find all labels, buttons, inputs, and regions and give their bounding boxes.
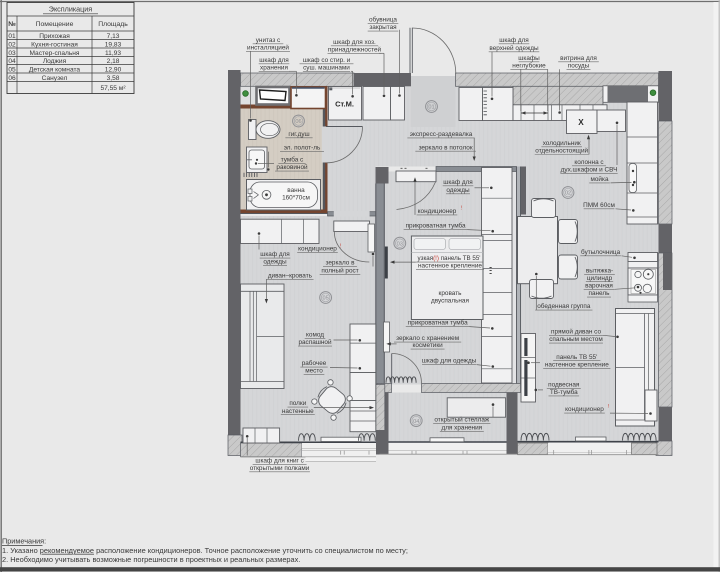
svg-text:зеркало в: зеркало в — [326, 260, 356, 267]
svg-text:Детская комната: Детская комната — [29, 66, 81, 73]
svg-text:для хранения: для хранения — [441, 425, 482, 432]
svg-text:унитаз с: унитаз с — [256, 37, 281, 44]
svg-text:!: ! — [461, 206, 462, 212]
svg-text:04: 04 — [413, 419, 419, 425]
svg-text:57,55 м²: 57,55 м² — [100, 85, 126, 92]
svg-text:косметики: косметики — [412, 342, 443, 349]
svg-text:Мастер-спальня: Мастер-спальня — [29, 50, 79, 57]
svg-text:11,93: 11,93 — [105, 50, 121, 57]
svg-text:06: 06 — [295, 119, 301, 125]
svg-text:панель ТВ 55': панель ТВ 55' — [556, 354, 597, 361]
svg-text:вытяжка-: вытяжка- — [586, 267, 613, 274]
svg-text:шкаф для: шкаф для — [260, 251, 290, 258]
svg-text:06: 06 — [8, 75, 16, 82]
svg-text:1. Указано рекомендуемое распо: 1. Указано рекомендуемое расположение ко… — [2, 546, 408, 555]
svg-text:тумба с: тумба с — [281, 156, 304, 164]
svg-text:настенные: настенные — [282, 408, 314, 415]
svg-text:колонна с: колонна с — [574, 159, 604, 166]
svg-text:2. Необходимо учитывать возмож: 2. Необходимо учитывать возможные погреш… — [2, 555, 300, 564]
svg-text:!: ! — [340, 243, 341, 249]
svg-text:одежды: одежды — [446, 187, 470, 194]
svg-text:ванна: ванна — [287, 187, 305, 194]
svg-text:открытый стеллаж: открытый стеллаж — [434, 416, 490, 424]
svg-text:закрытая: закрытая — [369, 24, 397, 31]
svg-text:№: № — [8, 21, 16, 28]
svg-text:экспресс-раздевалка: экспресс-раздевалка — [410, 131, 473, 138]
svg-text:3,58: 3,58 — [107, 75, 120, 82]
svg-text:шкафы: шкафы — [518, 55, 540, 62]
svg-text:прикроватная тумба: прикроватная тумба — [406, 222, 466, 230]
svg-text:неглубокие: неглубокие — [512, 61, 546, 69]
svg-text:02: 02 — [8, 41, 16, 48]
svg-text:12,90: 12,90 — [105, 66, 122, 73]
svg-text:Помещение: Помещение — [36, 21, 74, 28]
svg-text:полный рост: полный рост — [321, 266, 358, 274]
svg-text:05: 05 — [322, 296, 328, 302]
svg-text:X: X — [578, 118, 584, 127]
svg-text:кондиционер: кондиционер — [298, 246, 337, 253]
svg-text:инсталляцией: инсталляцией — [247, 43, 289, 51]
svg-text:узкая(!) панель ТВ 55': узкая(!) панель ТВ 55' — [418, 255, 481, 262]
svg-text:2,18: 2,18 — [107, 58, 120, 65]
svg-text:двуспальная: двуспальная — [431, 297, 469, 304]
svg-text:бутылочница: бутылочница — [581, 248, 621, 256]
svg-text:Кухня-гостиная: Кухня-гостиная — [31, 41, 78, 48]
svg-text:шкаф для одежды: шкаф для одежды — [422, 358, 477, 365]
svg-text:шкаф для хоз.: шкаф для хоз. — [333, 39, 376, 46]
svg-text:Лоджия: Лоджия — [43, 58, 67, 65]
svg-text:шкаф для: шкаф для — [443, 179, 473, 186]
svg-text:дух.шкафом и СВЧ: дух.шкафом и СВЧ — [561, 166, 618, 173]
svg-text:шкаф для: шкаф для — [259, 57, 289, 64]
svg-text:04: 04 — [8, 58, 16, 65]
svg-text:ТВ-тумба: ТВ-тумба — [550, 388, 578, 396]
svg-text:витрина для: витрина для — [560, 55, 597, 62]
svg-text:настенное крепление: настенное крепление — [545, 361, 609, 368]
svg-text:Примечания:: Примечания: — [2, 537, 46, 546]
svg-text:05: 05 — [8, 66, 16, 73]
svg-text:7,13: 7,13 — [107, 33, 120, 40]
svg-text:Прихожая: Прихожая — [39, 33, 70, 40]
svg-text:место: место — [305, 368, 323, 375]
svg-text:мойка: мойка — [590, 175, 608, 183]
svg-text:панель: панель — [589, 290, 611, 297]
svg-text:верхней одежды: верхней одежды — [489, 44, 539, 52]
svg-text:открытыми полками: открытыми полками — [250, 465, 310, 472]
svg-text:обувница: обувница — [369, 15, 397, 23]
svg-text:кондиционер: кондиционер — [565, 406, 604, 413]
svg-text:настенное крепление: настенное крепление — [418, 263, 482, 270]
svg-text:подвесная: подвесная — [548, 382, 580, 389]
svg-text:комод: комод — [306, 332, 324, 339]
svg-text:посуды: посуды — [568, 62, 590, 69]
svg-text:шкаф для книг с: шкаф для книг с — [255, 457, 304, 464]
svg-text:кровать: кровать — [439, 290, 463, 297]
svg-text:гиг.душ: гиг.душ — [288, 131, 309, 138]
svg-text:160*70см: 160*70см — [282, 194, 310, 201]
svg-text:02: 02 — [565, 191, 571, 197]
svg-text:шкаф со стир. и: шкаф со стир. и — [303, 57, 351, 64]
svg-text:полки: полки — [289, 400, 306, 407]
svg-text:Ст.М.: Ст.М. — [335, 100, 354, 109]
svg-text:Санузел: Санузел — [42, 75, 68, 82]
svg-text:01: 01 — [8, 33, 16, 40]
svg-text:прикроватная тумба: прикроватная тумба — [408, 319, 468, 327]
svg-text:обеденная группа: обеденная группа — [537, 302, 591, 310]
svg-text:Экспликация: Экспликация — [49, 5, 93, 14]
svg-text:суш. машинами: суш. машинами — [303, 64, 350, 71]
svg-text:отдельностоящий: отдельностоящий — [535, 147, 588, 155]
svg-text:диван–кровать: диван–кровать — [268, 272, 313, 279]
svg-text:цилиндр: цилиндр — [587, 275, 613, 282]
svg-text:рабочее: рабочее — [302, 359, 327, 367]
svg-text:зеркало в потолок: зеркало в потолок — [419, 144, 473, 151]
svg-text:холодильник: холодильник — [543, 140, 581, 147]
svg-text:!: ! — [608, 404, 609, 410]
svg-text:шкаф для: шкаф для — [499, 37, 529, 44]
svg-text:Площадь: Площадь — [98, 21, 128, 28]
svg-text:19,83: 19,83 — [105, 41, 122, 48]
svg-text:03: 03 — [397, 241, 403, 247]
svg-text:раковиной: раковиной — [276, 163, 308, 171]
svg-text:03: 03 — [8, 50, 16, 57]
svg-text:спальным местом: спальным местом — [549, 336, 603, 343]
svg-text:хранения: хранения — [260, 64, 288, 71]
svg-text:зеркало с хранением: зеркало с хранением — [396, 335, 459, 342]
svg-text:эл. полот-ль: эл. полот-ль — [284, 145, 321, 152]
svg-text:ПММ 60см: ПММ 60см — [583, 202, 615, 209]
svg-text:одежды: одежды — [263, 259, 287, 266]
svg-text:кондиционер: кондиционер — [418, 208, 457, 215]
svg-text:принадлежностей: принадлежностей — [328, 45, 382, 53]
svg-text:01: 01 — [428, 105, 434, 111]
svg-text:прямой диван со: прямой диван со — [551, 327, 601, 335]
svg-text:варочная: варочная — [585, 282, 613, 289]
svg-text:распашной: распашной — [298, 338, 332, 346]
